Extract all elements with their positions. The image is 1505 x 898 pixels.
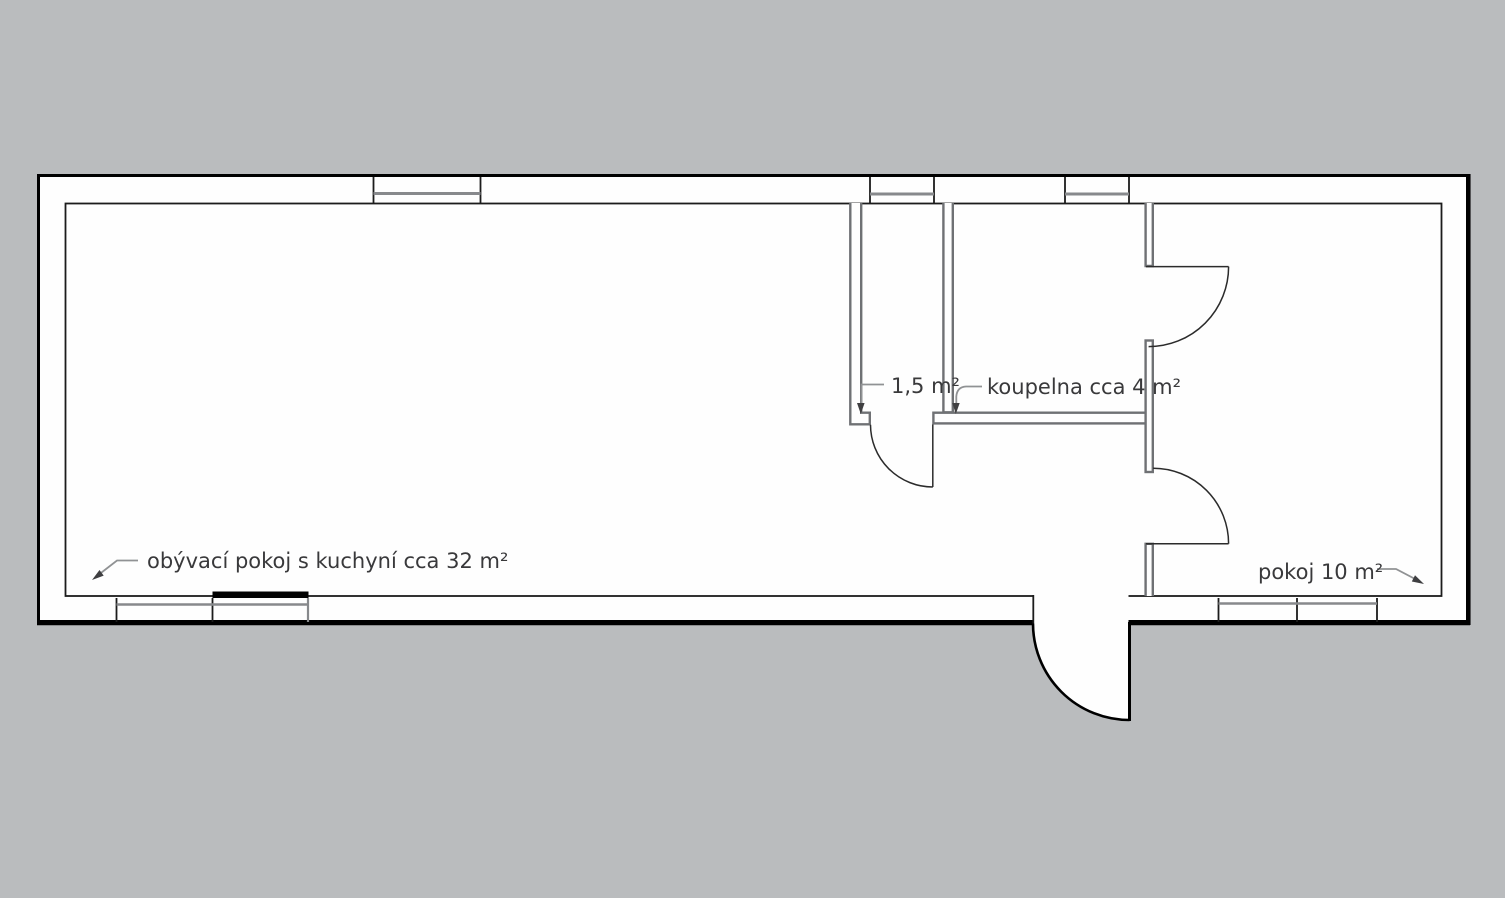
room-label-room: pokoj 10 m² — [1258, 561, 1383, 583]
room-label-wc: 1,5 m² — [891, 375, 960, 397]
bathroom-bottom-wall — [933, 413, 1148, 424]
floor-plan: 1,5 m² koupelna cca 4 m² obývací pokoj s… — [0, 0, 1505, 898]
entrance-door — [1033, 595, 1130, 721]
floor-plan-drawing — [0, 0, 1505, 898]
door-swing-area — [1033, 624, 1130, 721]
entrance-opening — [1034, 595, 1129, 626]
pokoj-wall-middle — [1146, 341, 1153, 473]
inner-wall-outline — [66, 204, 1442, 597]
pokoj-wall-lower — [1146, 544, 1153, 596]
room-label-bathroom: koupelna cca 4 m² — [987, 376, 1181, 398]
balcony-door-sill — [213, 592, 309, 599]
pokoj-wall-upper — [1146, 203, 1153, 266]
room-label-living: obývací pokoj s kuchyní cca 32 m² — [147, 550, 508, 572]
